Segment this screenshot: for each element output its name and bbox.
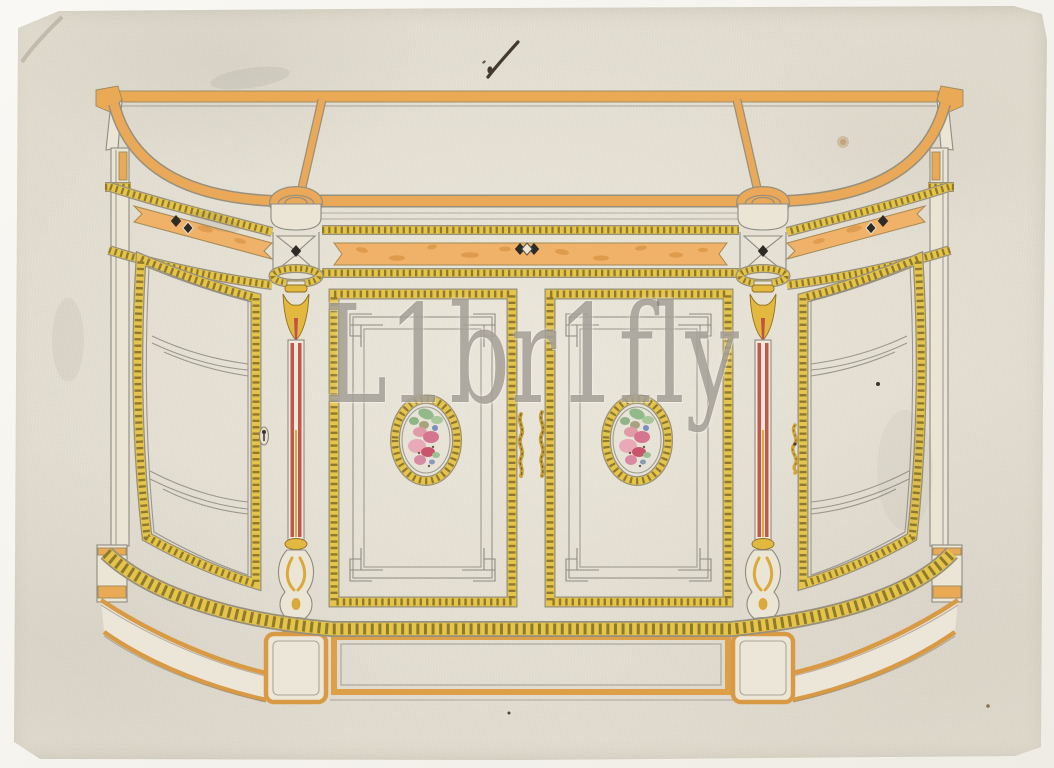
frieze — [322, 230, 739, 273]
top-rear-band — [113, 91, 938, 102]
paper-sheet: L1br1fly — [0, 0, 1054, 768]
watermark-overlay: L1br1fly — [324, 288, 740, 424]
right-door-escutcheon — [793, 425, 797, 473]
plinth-panel — [334, 637, 728, 692]
ink-slash — [482, 42, 518, 77]
left-door-keyhole — [260, 427, 269, 445]
base-rope-moulding — [106, 553, 952, 629]
plinth — [330, 637, 733, 700]
